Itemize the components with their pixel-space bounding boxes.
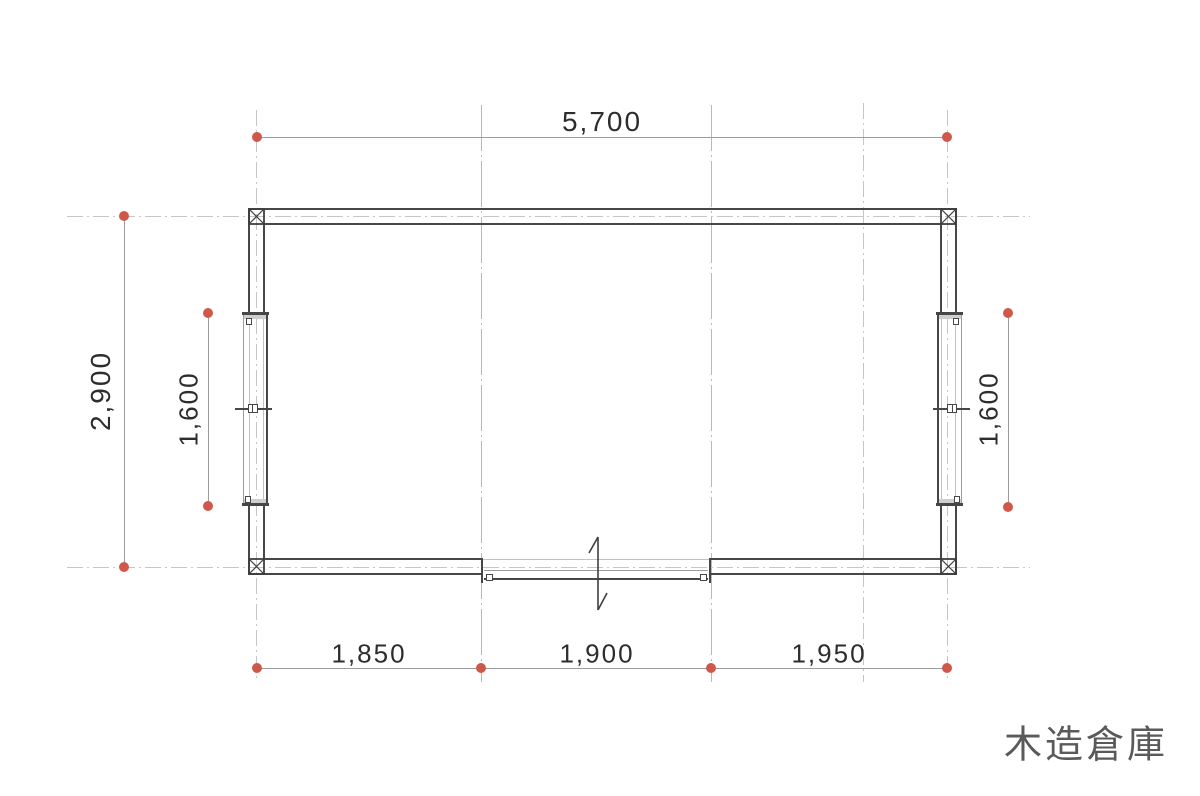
door-break-line-icon	[584, 532, 612, 614]
dimension-marker	[119, 211, 129, 221]
dimension-marker	[942, 663, 952, 673]
wall-line-bottom-outer-right	[710, 573, 957, 575]
window-left-jamb-block	[245, 496, 251, 503]
door-jamb-right	[709, 558, 711, 583]
window-right-jamb-block	[954, 496, 960, 503]
dimension-text-window-left: 1,600	[174, 371, 205, 446]
dimension-text-window-right: 1,600	[974, 371, 1005, 446]
dimension-text-bottom-bay2: 1,900	[559, 639, 634, 670]
corner-post-icon	[940, 558, 957, 575]
dimension-marker	[203, 501, 213, 511]
window-left-cap-bottom	[242, 503, 269, 506]
wall-line-left-inner-upper	[263, 223, 265, 314]
window-left-meeting-divider	[252, 404, 253, 413]
floor-plan-canvas: 5,700 2,900 1,600 1,600 1,850 1,900 1,95…	[0, 0, 1200, 796]
dimension-text-bottom-bay3: 1,950	[791, 639, 866, 670]
wall-line-right-inner-lower	[940, 505, 942, 560]
wall-line-bottom-inner-left	[263, 558, 482, 560]
dimension-marker	[119, 562, 129, 572]
grid-line-vertical-left	[256, 110, 257, 682]
window-right-cap-bottom	[936, 503, 963, 506]
dimension-text-bottom-bay1: 1,850	[331, 639, 406, 670]
dimension-text-top: 5,700	[562, 106, 642, 138]
corner-post-icon	[248, 208, 265, 225]
dimension-marker	[1003, 308, 1013, 318]
dimension-marker	[706, 663, 716, 673]
grid-line-vertical-door-right	[711, 105, 712, 682]
wall-line-left-inner-lower	[263, 505, 265, 560]
grid-line-vertical-right	[947, 110, 948, 682]
dimension-text-left: 2,900	[85, 351, 117, 431]
grid-line-horizontal-bottom	[67, 567, 1030, 568]
corner-post-icon	[248, 558, 265, 575]
window-left-meeting-block	[248, 404, 258, 413]
wall-line-top-outer	[248, 208, 957, 210]
grid-line-vertical-door-left	[481, 105, 482, 682]
dimension-line-window-left	[208, 313, 209, 506]
window-left-jamb-block	[246, 318, 252, 325]
wall-line-bottom-inner-right	[710, 558, 942, 560]
dimension-marker	[252, 663, 262, 673]
door-jamb-left	[481, 558, 483, 583]
dimension-marker	[203, 308, 213, 318]
drawing-title: 木造倉庫	[1004, 714, 1168, 769]
grid-line-horizontal-top	[67, 216, 1030, 217]
dimension-line-window-right	[1008, 313, 1009, 507]
dimension-marker	[1003, 502, 1013, 512]
window-right-jamb-block	[953, 318, 959, 325]
wall-line-right-inner-upper	[940, 223, 942, 314]
window-right-meeting-divider	[952, 404, 953, 413]
door-leaf-end-block	[700, 574, 707, 581]
dimension-marker	[476, 663, 486, 673]
wall-line-top-inner	[263, 223, 942, 225]
dimension-line-left	[124, 216, 125, 567]
corner-post-icon	[940, 208, 957, 225]
dimension-marker	[252, 132, 262, 142]
door-leaf-end-block	[486, 574, 493, 581]
dimension-marker	[942, 132, 952, 142]
wall-line-bottom-outer-left	[248, 573, 482, 575]
grid-line-vertical-intermediate	[863, 103, 864, 682]
